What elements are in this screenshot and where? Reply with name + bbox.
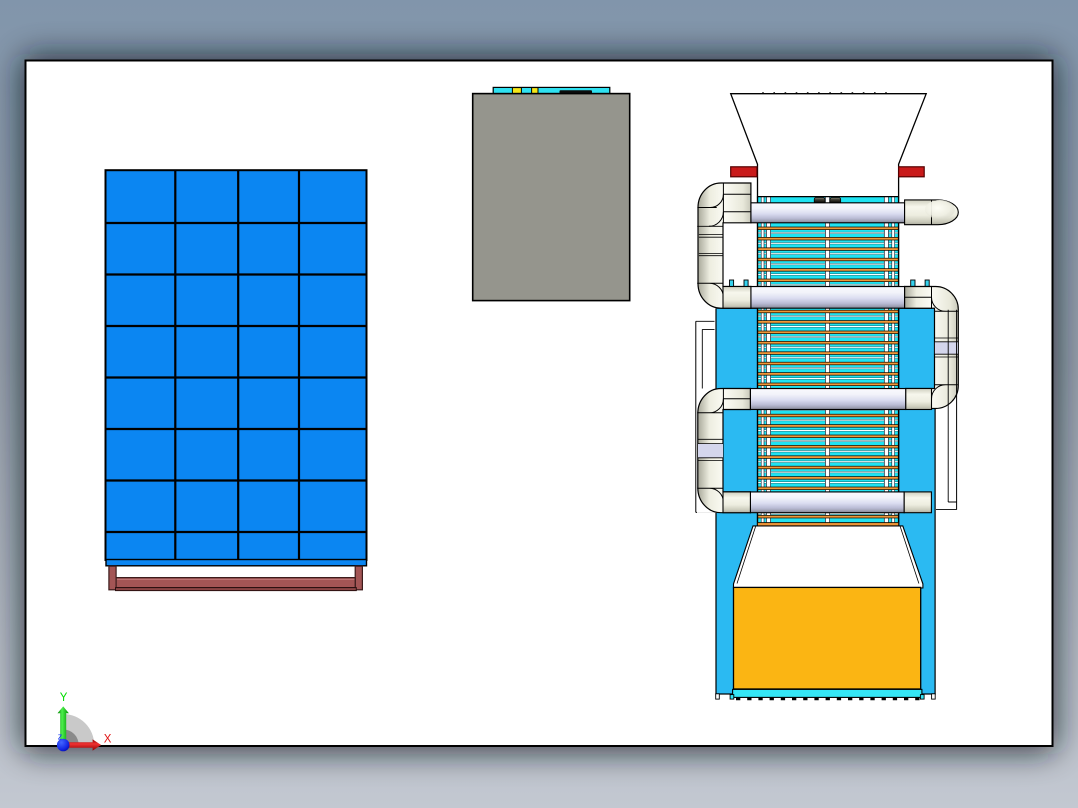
svg-text:X: X	[104, 734, 112, 746]
svg-text:Y: Y	[60, 692, 68, 704]
